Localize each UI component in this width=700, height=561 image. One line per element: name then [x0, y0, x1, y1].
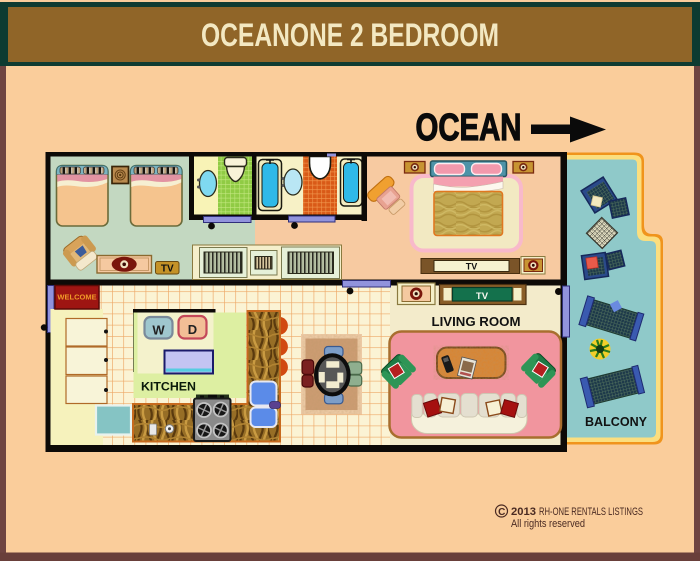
svg-text:KITCHEN: KITCHEN: [141, 380, 196, 394]
svg-text:C: C: [498, 507, 505, 518]
svg-text:TV: TV: [466, 261, 478, 271]
svg-text:W: W: [152, 323, 165, 338]
svg-text:OCEANONE 2 BEDROOM: OCEANONE 2 BEDROOM: [201, 17, 499, 53]
svg-text:WELCOME: WELCOME: [57, 293, 96, 302]
svg-text:BALCONY: BALCONY: [585, 414, 647, 429]
svg-text:2013: 2013: [511, 506, 536, 518]
svg-text:TV: TV: [161, 263, 174, 274]
svg-text:OCEAN: OCEAN: [416, 107, 522, 149]
svg-text:TV: TV: [476, 291, 489, 302]
svg-text:LIVING ROOM: LIVING ROOM: [432, 315, 521, 329]
svg-text:All rights reserved: All rights reserved: [511, 518, 585, 530]
svg-text:RH-ONE RENTALS LISTINGS: RH-ONE RENTALS LISTINGS: [539, 506, 643, 518]
svg-text:D: D: [188, 322, 197, 337]
